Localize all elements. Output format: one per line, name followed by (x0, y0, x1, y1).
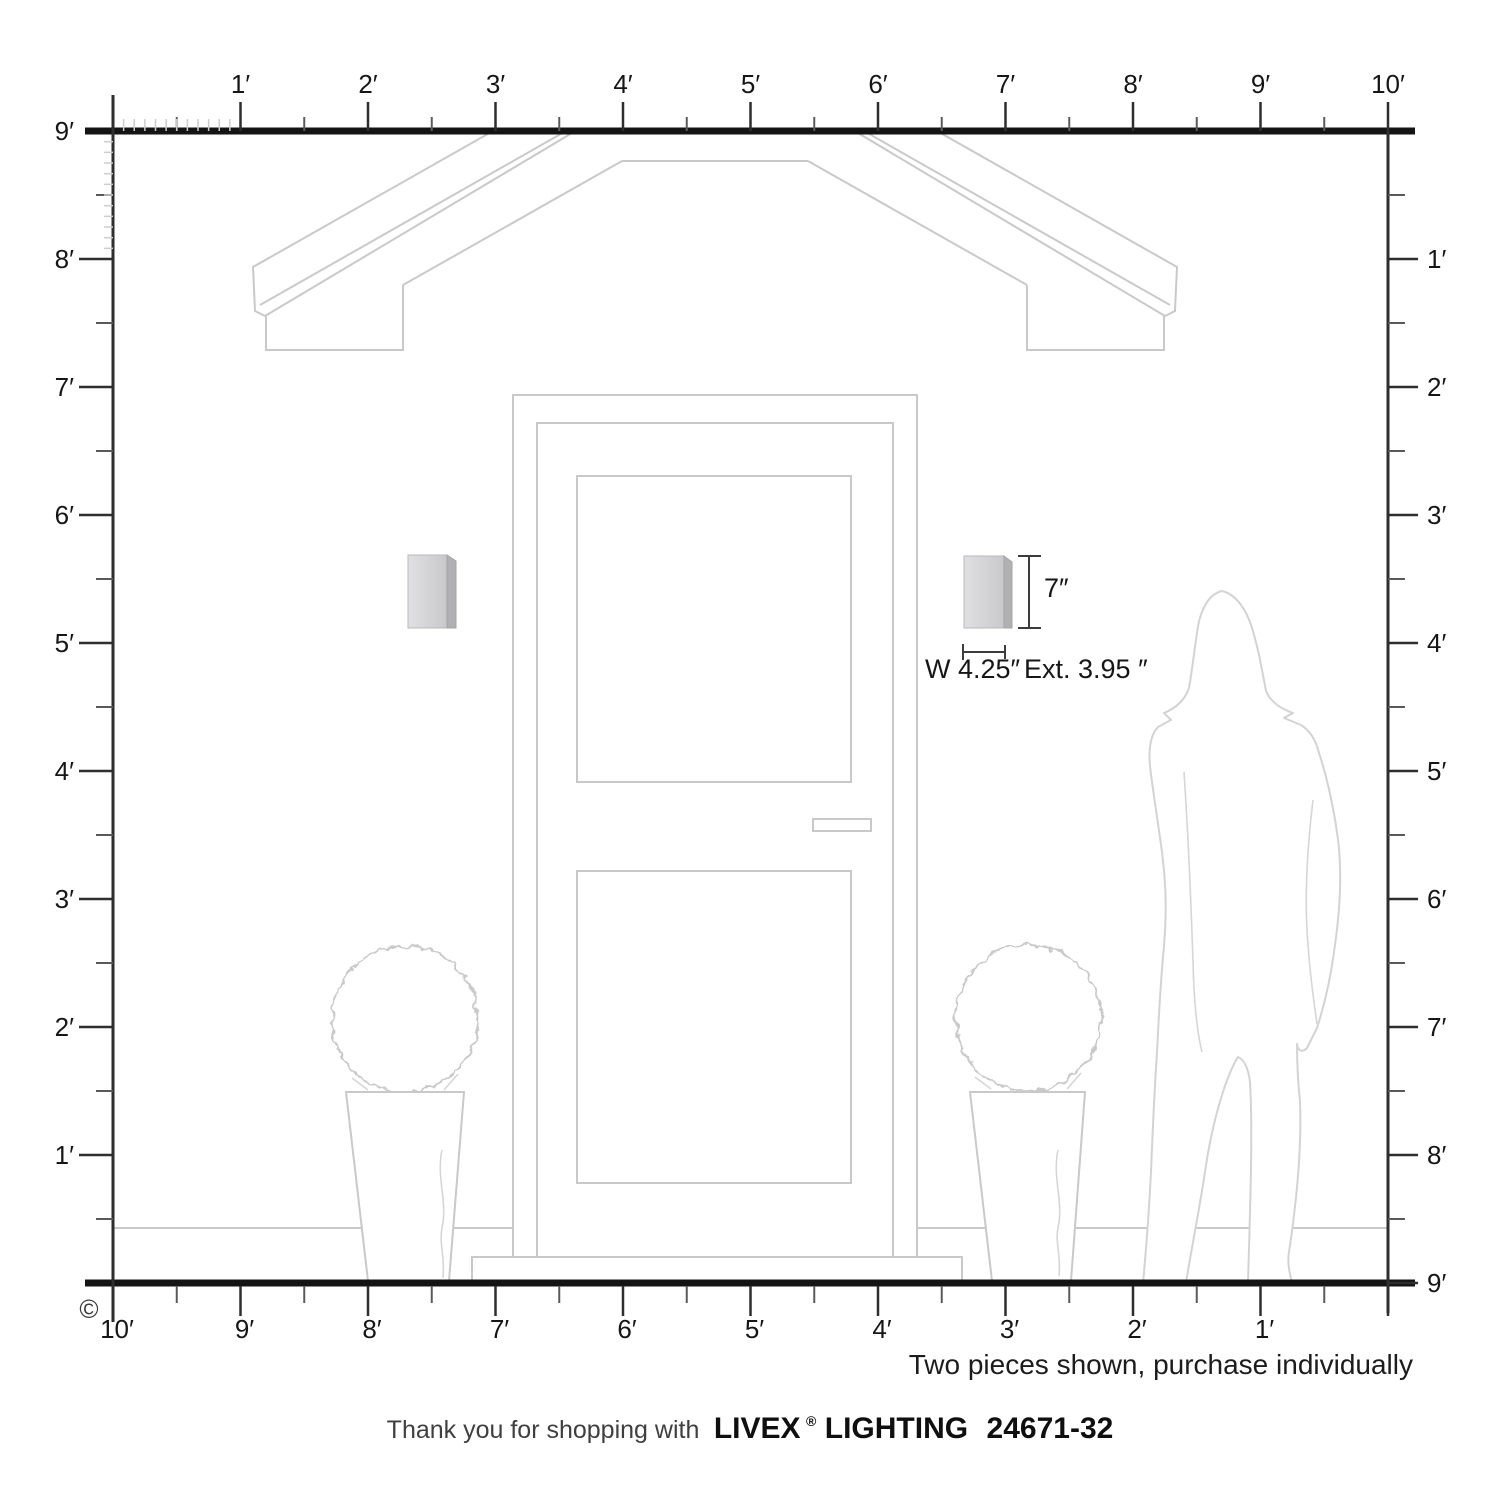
bottom-foot-label: 6′ (617, 1314, 636, 1344)
left-foot-label: 9′ (55, 116, 74, 146)
left-foot-label: 2′ (55, 1012, 74, 1042)
width-dimension-label: W 4.25″ (925, 654, 1021, 684)
woman-outline (1143, 591, 1340, 1283)
sconce-right-side (1004, 556, 1012, 628)
door-step (472, 1257, 962, 1283)
topiary-right (955, 945, 1101, 1281)
top-foot-label: 9′ (1251, 69, 1270, 99)
sconce-right (964, 556, 1012, 628)
bottom-foot-label: 8′ (362, 1314, 381, 1344)
top-foot-label: 3′ (486, 69, 505, 99)
top-foot-label: 6′ (868, 69, 887, 99)
roof-left-fascia-bottom-b (265, 133, 572, 316)
top-foot-label: 10′ (1371, 69, 1405, 99)
bottom-foot-label: 5′ (745, 1314, 764, 1344)
woman-silhouette (1143, 591, 1340, 1283)
bottom-foot-label: 3′ (1000, 1314, 1019, 1344)
roof-right-soffit (808, 161, 1027, 285)
sconce-left-side (447, 555, 456, 628)
footer-line: Thank you for shopping with LIVEX ® LIGH… (387, 1412, 1114, 1445)
dimension-annotations: 7″ W 4.25″ Ext. 3.95 ″ (925, 556, 1148, 684)
scene: 7″ W 4.25″ Ext. 3.95 ″ (113, 131, 1387, 1283)
ruler-right: 1′2′3′4′5′6′7′8′9′ (1388, 195, 1446, 1298)
height-dimension-line (1018, 556, 1041, 628)
front-door (472, 395, 962, 1283)
door-panel-top (577, 476, 851, 782)
ruler-left: 9′8′7′6′5′4′3′2′1′ (55, 116, 113, 1219)
footer-thanks-text: Thank you for shopping with (387, 1416, 700, 1444)
bottom-foot-label: 9′ (235, 1314, 254, 1344)
roof-outline (253, 131, 1177, 350)
door-handle (813, 819, 871, 831)
diagram-canvas: 7″ W 4.25″ Ext. 3.95 ″ 1′2′3′4′5′6′7′8′9… (0, 0, 1500, 1500)
registered-trademark-icon: ® (806, 1413, 817, 1429)
topiary-right-planter (970, 1092, 1085, 1281)
left-foot-label: 3′ (55, 884, 74, 914)
right-foot-label: 5′ (1427, 756, 1446, 786)
top-foot-label: 1′ (231, 69, 250, 99)
sconce-right-face (964, 556, 1004, 628)
footer-brand: LIVEX (714, 1412, 801, 1445)
purchase-note: Two pieces shown, purchase individually (909, 1349, 1413, 1380)
right-foot-label: 1′ (1427, 244, 1446, 274)
bottom-foot-label: 7′ (490, 1314, 509, 1344)
top-foot-label: 7′ (996, 69, 1015, 99)
copyright-mark: © (79, 1294, 98, 1324)
bottom-foot-label: 2′ (1127, 1314, 1146, 1344)
ruler-bottom: 10′9′8′7′6′5′4′3′2′1′ (100, 1286, 1388, 1344)
top-foot-label: 4′ (613, 69, 632, 99)
bottom-foot-label: 10′ (100, 1314, 134, 1344)
right-foot-label: 3′ (1427, 500, 1446, 530)
height-dimension-label: 7″ (1044, 573, 1069, 603)
left-foot-label: 7′ (55, 372, 74, 402)
bottom-foot-label: 4′ (872, 1314, 891, 1344)
product-dimension-diagram: 7″ W 4.25″ Ext. 3.95 ″ 1′2′3′4′5′6′7′8′9… (0, 0, 1500, 1500)
top-foot-label: 2′ (358, 69, 377, 99)
topiary-left-planter (346, 1092, 464, 1281)
sconce-left-face (408, 555, 447, 628)
extension-dimension-label: Ext. 3.95 ″ (1024, 654, 1148, 684)
right-foot-label: 2′ (1427, 372, 1446, 402)
left-foot-label: 6′ (55, 500, 74, 530)
left-foot-label: 1′ (55, 1140, 74, 1170)
topiary-left-foliage (332, 946, 478, 1092)
roof-right-fascia-bottom-b (858, 133, 1165, 316)
right-foot-label: 7′ (1427, 1012, 1446, 1042)
topiary-right-foliage (955, 945, 1101, 1091)
roof-right-post (1027, 285, 1164, 350)
roof-left-post (266, 285, 403, 350)
ruler-top: 1′2′3′4′5′6′7′8′9′10′ (124, 69, 1405, 131)
bottom-foot-label: 1′ (1255, 1314, 1274, 1344)
footer-brand-suffix: LIGHTING (825, 1412, 968, 1445)
top-foot-label: 8′ (1123, 69, 1142, 99)
roof-left-soffit (403, 161, 622, 285)
sconce-left (408, 555, 456, 628)
ruler-bottom-bar (85, 1280, 1415, 1287)
top-foot-label: 5′ (741, 69, 760, 99)
left-foot-label: 8′ (55, 244, 74, 274)
right-foot-label: 6′ (1427, 884, 1446, 914)
right-foot-label: 9′ (1427, 1268, 1446, 1298)
topiary-left (332, 946, 478, 1281)
left-foot-label: 5′ (55, 628, 74, 658)
footer-model-number: 24671-32 (987, 1412, 1114, 1445)
door-panel-bottom (577, 871, 851, 1183)
left-foot-label: 4′ (55, 756, 74, 786)
right-foot-label: 4′ (1427, 628, 1446, 658)
right-foot-label: 8′ (1427, 1140, 1446, 1170)
